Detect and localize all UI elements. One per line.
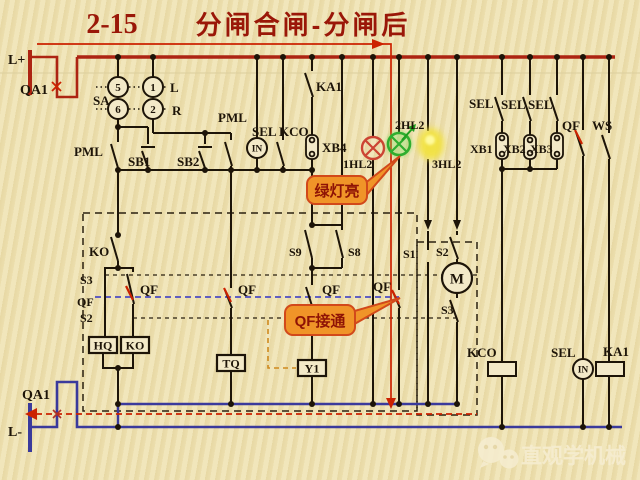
motor-device: M [450, 272, 464, 288]
label-ka1-top: KA1 [316, 79, 342, 94]
callout-qf-closed: QF接通 [285, 298, 400, 335]
slide-background: 2-15 分闸合闸-分闸后 [0, 0, 640, 480]
label-hl3: 3HL2 [432, 157, 461, 171]
junction-dot [499, 166, 505, 172]
wechat-icon [478, 437, 519, 469]
junction-dot [554, 54, 560, 60]
junction-dot [115, 167, 121, 173]
junction-dot [606, 424, 612, 430]
label-qf-d: QF [373, 279, 391, 294]
label-sb1: SB1 [128, 154, 150, 169]
y1-coil-label: Y1 [305, 362, 320, 376]
label-hl1: 1HL2 [343, 157, 372, 171]
label-sel-top: SEL [252, 124, 277, 139]
label-xb4: XB4 [322, 140, 347, 155]
label-s3-left: S3 [80, 273, 93, 287]
kco-coil [488, 362, 516, 376]
junction-dot [454, 54, 460, 60]
junction-dot [396, 54, 402, 60]
wire-pml2 [225, 133, 232, 170]
label-l-plus: L+ [8, 53, 25, 68]
junction-dot [115, 54, 121, 60]
component-boxes: HQ KO TQ Y1 [89, 337, 624, 376]
junction-dot [228, 167, 234, 173]
junction-dot [499, 54, 505, 60]
junction-dot [115, 124, 121, 130]
junction-dot [280, 167, 286, 173]
junction-dot [228, 401, 234, 407]
wire-kco-column [277, 57, 284, 170]
in-top-device: IN [252, 145, 263, 155]
page-title-number: 2-15 [86, 9, 137, 40]
junction-dot [115, 365, 121, 371]
label-l-minus: L- [8, 425, 22, 440]
label-sb2: SB2 [177, 154, 199, 169]
label-kco-top: KCO [279, 124, 309, 139]
watermark: 直观学机械 [478, 437, 626, 469]
junction-dot [370, 401, 376, 407]
sa-contact-2: 2 [150, 104, 156, 116]
label-xb1: XB1 [470, 142, 493, 156]
junction-dot [202, 130, 208, 136]
sa-contact-6: 6 [115, 104, 121, 116]
circuit-schematic: 2-15 分闸合闸-分闸后 [0, 0, 640, 480]
junction-dot [580, 424, 586, 430]
junction-dot [309, 167, 315, 173]
junction-dot [309, 265, 315, 271]
label-s2-left: S2 [80, 311, 93, 325]
sa-contact-1: 1 [150, 82, 156, 94]
plug-arrows [424, 220, 461, 230]
in-bottom-device: IN [578, 366, 589, 376]
label-xb3: XB3 [530, 142, 553, 156]
junction-dot [150, 54, 156, 60]
label-sa: SA [93, 93, 110, 108]
junction-dot [527, 54, 533, 60]
label-ws: WS [592, 118, 612, 133]
page-title: 分闸合闸-分闸后 [196, 10, 411, 40]
junction-dot [115, 232, 121, 238]
wire-motor-column [450, 57, 458, 404]
junction-dot [454, 401, 460, 407]
ka1-coil [596, 362, 624, 376]
junction-dot [425, 401, 431, 407]
junction-dot [254, 167, 260, 173]
sa-contact-5: 5 [115, 82, 121, 94]
dashed-linkage-boxes [83, 213, 477, 415]
label-s1: S1 [403, 247, 416, 261]
label-kco-bottom: KCO [467, 345, 497, 360]
label-qf-main: QF [562, 118, 580, 133]
ko-coil-label: KO [126, 339, 145, 353]
junction-dot [280, 54, 286, 60]
label-sa-l: L [170, 80, 179, 95]
wire-sb2 [198, 133, 212, 170]
label-s9: S9 [289, 245, 302, 259]
junction-dot [254, 54, 260, 60]
component-labels: L+QA1SALRPMLSB1SB2PMLKA1SELKCOXB41HL22HL… [8, 53, 629, 440]
label-pml-mid: PML [218, 110, 247, 125]
junction-dot [580, 54, 586, 60]
junction-dot [309, 401, 315, 407]
junction-dot [606, 54, 612, 60]
junction-dot [339, 54, 345, 60]
label-pml-left: PML [74, 144, 103, 159]
label-s2-right: S2 [436, 245, 449, 259]
label-qa1-bottom: QA1 [22, 388, 50, 403]
callout-green-lamp-text: 绿灯亮 [314, 182, 359, 200]
junction-dot [396, 401, 402, 407]
label-hl2: 2HL2 [395, 118, 424, 132]
label-sel-r1: SEL [469, 96, 494, 111]
label-s3-right: S3 [441, 303, 454, 317]
label-ka1-bottom: KA1 [603, 344, 629, 359]
wire-lamp2-column [393, 57, 400, 404]
watermark-text: 直观学机械 [521, 444, 626, 468]
hq-coil-label: HQ [94, 339, 113, 353]
tq-coil-label: TQ [222, 357, 239, 371]
label-sel-bottom: SEL [551, 345, 576, 360]
junction-dot [115, 265, 121, 271]
label-xb2: XB2 [503, 142, 526, 156]
label-sel-r2: SEL [501, 97, 526, 112]
label-qf-left: QF [77, 295, 94, 309]
junction-dot [309, 54, 315, 60]
label-qf-c: QF [322, 282, 340, 297]
junction-dot [309, 222, 315, 228]
junction-dot [202, 167, 208, 173]
label-s8: S8 [348, 245, 361, 259]
label-ko-sw: KO [89, 244, 109, 259]
label-qf-b: QF [238, 282, 256, 297]
junction-dot [499, 424, 505, 430]
junction-dot [115, 424, 121, 430]
label-qa1-top: QA1 [20, 83, 48, 98]
junction-dot [370, 54, 376, 60]
junction-dot [527, 166, 533, 172]
junction-dot [425, 54, 431, 60]
callout-qf-closed-text: QF接通 [295, 312, 346, 330]
label-qf-a: QF [140, 282, 158, 297]
label-sa-r: R [172, 103, 182, 118]
label-sel-r3: SEL [528, 97, 553, 112]
junction-dot [115, 401, 121, 407]
